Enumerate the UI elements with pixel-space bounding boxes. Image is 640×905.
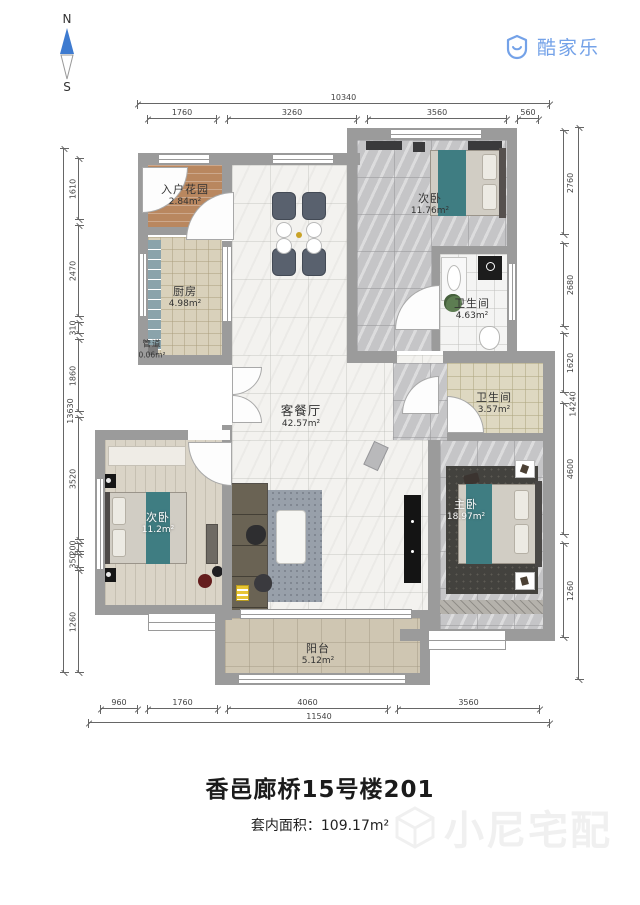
dim-left-seg: 2470 — [78, 225, 79, 317]
wall — [443, 351, 543, 363]
north-arrow-icon — [60, 28, 74, 54]
compass: N S — [52, 12, 82, 94]
bay-window — [148, 613, 216, 631]
dining-chair — [272, 192, 296, 220]
balcony-window — [238, 674, 406, 684]
dim-left-seg: 1260 — [78, 570, 79, 673]
dim-bottom-total: 11540 — [88, 722, 550, 723]
pillow — [482, 184, 497, 210]
kujiale-logo-text: 酷家乐 — [537, 33, 600, 60]
dim-label: 1610 — [69, 179, 78, 199]
tv-cabinet — [404, 495, 421, 583]
pillow — [482, 154, 497, 180]
headboard — [499, 148, 506, 218]
bedroom-left-name: 次卧 — [142, 511, 174, 525]
window — [158, 154, 210, 164]
window — [139, 253, 147, 317]
tv-knob — [411, 520, 414, 523]
dim-label: 1760 — [172, 108, 192, 117]
room-label-master: 主卧 18.97m² — [447, 498, 485, 524]
lamp — [106, 572, 111, 577]
place-setting — [276, 222, 292, 238]
balcony-slider — [240, 609, 412, 619]
dim-top-seg: 560 — [517, 118, 539, 119]
dim-right-seg: 4600 — [563, 403, 564, 535]
room-label-kitchen: 厨房 4.98m² — [169, 285, 201, 311]
bath-mid-name: 卫生间 — [476, 391, 512, 405]
dim-label: 560 — [520, 108, 535, 117]
dim-label: 4060 — [297, 698, 317, 707]
dim-right-seg: 2760 — [563, 130, 564, 235]
dim-top-seg: 3260 — [227, 118, 357, 119]
curtain-box — [468, 141, 502, 150]
place-setting — [306, 238, 322, 254]
window — [96, 478, 104, 570]
window — [390, 129, 482, 139]
room-label-entry-garden: 入户花园 2.84m² — [161, 183, 209, 209]
kitchen-door-slider — [222, 246, 232, 322]
washer-door — [486, 262, 495, 271]
wall — [543, 351, 555, 641]
duct-area: 0.06m² — [138, 351, 165, 361]
dim-label: 1860 — [69, 365, 78, 385]
dim-label: 1620 — [566, 353, 575, 373]
dim-label: 10340 — [331, 93, 356, 102]
stacked-stools — [236, 585, 249, 601]
dim-top-seg: 3560 — [367, 118, 507, 119]
dim-label: 1260 — [566, 580, 575, 600]
lamp — [106, 478, 111, 483]
south-arrow-icon — [59, 54, 75, 80]
dim-left-total: 13630 — [63, 148, 64, 673]
nightstand — [413, 142, 425, 152]
balcony-area: 5.12m² — [302, 656, 334, 668]
place-setting — [306, 222, 322, 238]
dim-left-seg: 310 — [78, 322, 79, 334]
dresser — [206, 524, 218, 564]
room-label-balcony: 阳台 5.12m² — [302, 642, 334, 668]
dim-bottom-seg: 4060 — [227, 708, 388, 709]
living-name: 客餐厅 — [281, 403, 322, 419]
dim-label: 2680 — [566, 275, 575, 295]
dim-bottom-seg: 960 — [100, 708, 138, 709]
duct-name: 管道 — [138, 340, 165, 351]
dim-label: 13630 — [66, 398, 75, 423]
pillow — [514, 524, 529, 554]
stool — [198, 574, 212, 588]
dim-right-seg: 1260 — [563, 543, 564, 638]
dim-label: 14240 — [569, 391, 578, 416]
dim-label: 1760 — [172, 698, 192, 707]
room-label-bath-mid: 卫生间 3.57m² — [476, 391, 512, 417]
bath-top-name: 卫生间 — [454, 297, 490, 311]
bath-mid-area: 3.57m² — [476, 405, 512, 417]
kujiale-logo-icon — [504, 34, 530, 60]
room-label-bedroom-left: 次卧 11.2m² — [142, 511, 174, 537]
pillow — [112, 529, 126, 557]
master-wardrobe — [440, 600, 543, 614]
dim-left-seg: 200 — [78, 543, 79, 552]
room-label-bath-top: 卫生间 4.63m² — [454, 297, 490, 323]
master-area: 18.97m² — [447, 512, 485, 524]
kitchen-name: 厨房 — [169, 285, 201, 299]
wall — [428, 440, 440, 630]
compass-south-label: S — [52, 80, 82, 94]
wall — [447, 433, 555, 441]
plan-area-line: 套内面积：109.17m² — [0, 815, 640, 835]
living-area: 42.57m² — [281, 419, 322, 431]
dim-top-seg: 1760 — [147, 118, 217, 119]
headboard — [535, 481, 542, 567]
bedroom-top-area: 11.76m² — [411, 206, 449, 218]
toilet — [479, 326, 500, 350]
bay-window — [428, 630, 506, 650]
dim-label: 3520 — [69, 468, 78, 488]
dim-right-seg: 2680 — [563, 243, 564, 327]
pillow — [514, 490, 529, 520]
dim-label: 3260 — [282, 108, 302, 117]
dim-label: 2470 — [69, 261, 78, 281]
table-decor — [296, 232, 302, 238]
door-gap — [188, 430, 230, 440]
dining-chair — [302, 192, 326, 220]
balcony-name: 阳台 — [302, 642, 334, 656]
wall — [347, 351, 397, 363]
dim-top-total: 10340 — [137, 103, 550, 104]
bedroom-top-name: 次卧 — [411, 192, 449, 206]
kitchen-area: 4.98m² — [169, 299, 201, 311]
plan-title: 香邑廊桥15号楼201 — [0, 770, 640, 804]
tv-knob — [411, 550, 414, 553]
master-name: 主卧 — [447, 498, 485, 512]
person — [254, 574, 272, 592]
dim-label: 960 — [111, 698, 126, 707]
curtain-box — [366, 141, 402, 150]
dim-right-total: 14240 — [578, 127, 579, 680]
dim-left-seg: 1860 — [78, 339, 79, 412]
dim-bottom-seg: 1760 — [147, 708, 218, 709]
dim-label: 11540 — [306, 712, 331, 721]
dim-label: 3560 — [458, 698, 478, 707]
window — [508, 263, 516, 321]
bedroom-left-area: 11.2m² — [142, 525, 174, 537]
room-label-duct: 管道 0.06m² — [138, 340, 165, 361]
coffee-table — [276, 510, 306, 564]
floorplan-page: { "header": { "compass_n": "N", "compass… — [0, 0, 640, 905]
dim-label: 2760 — [566, 172, 575, 192]
kujiale-logo: 酷家乐 — [504, 33, 600, 60]
dim-label: 3560 — [427, 108, 447, 117]
wall — [432, 246, 507, 254]
dim-right-seg: 1620 — [563, 333, 564, 393]
room-label-living: 客餐厅 42.57m² — [281, 403, 322, 431]
compass-north-label: N — [52, 12, 82, 26]
dim-left-seg: 1610 — [78, 158, 79, 220]
entry-garden-area: 2.84m² — [161, 197, 209, 209]
wall — [507, 128, 517, 363]
pillow — [112, 497, 126, 525]
master-bed-runner — [466, 484, 492, 564]
window — [272, 154, 334, 164]
entry-garden-name: 入户花园 — [161, 183, 209, 197]
wardrobe — [108, 446, 186, 466]
sink — [447, 265, 461, 291]
wall — [347, 128, 357, 355]
room-label-bedroom-top: 次卧 11.76m² — [411, 192, 449, 218]
bath-top-area: 4.63m² — [454, 311, 490, 323]
dim-label: 4600 — [566, 459, 575, 479]
dim-left-seg: 3520 — [78, 417, 79, 540]
place-setting — [276, 238, 292, 254]
dim-bottom-seg: 3560 — [397, 708, 540, 709]
dim-label: 1260 — [69, 611, 78, 631]
kitchen-counter — [148, 240, 161, 350]
dim-left-seg: 350 — [78, 554, 79, 568]
